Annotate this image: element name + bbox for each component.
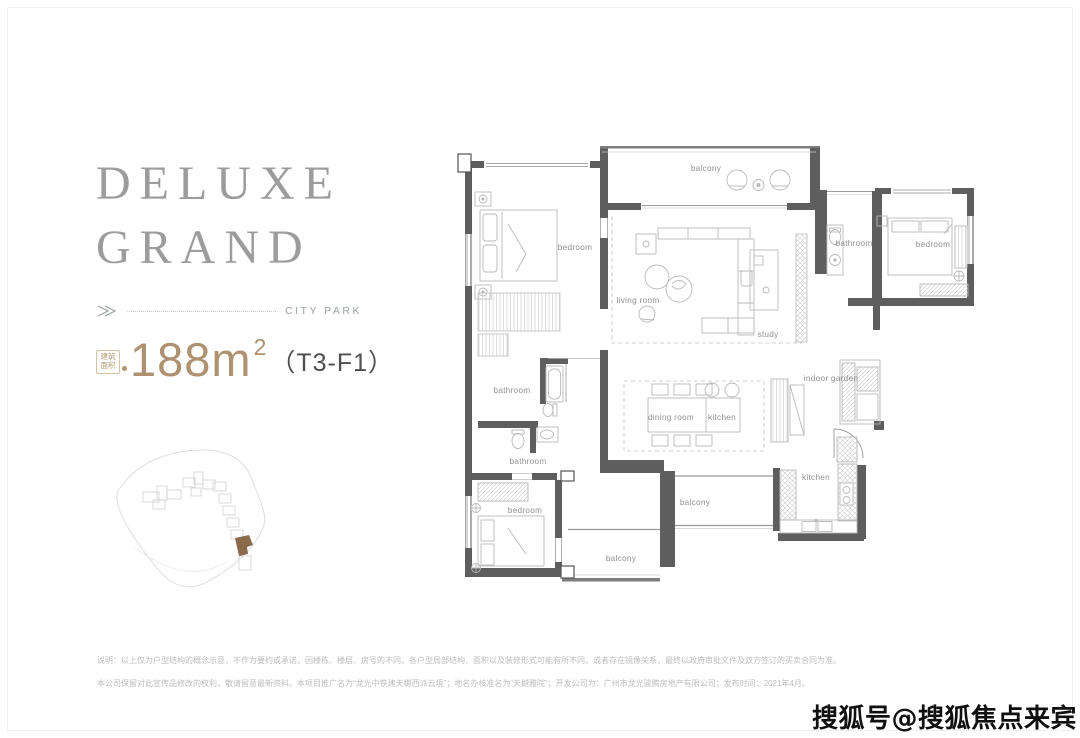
site-buildings — [143, 472, 251, 570]
room-label-indoor-garden: indoor garden — [804, 374, 859, 383]
site-boundary — [117, 450, 265, 587]
thin-lines — [548, 152, 880, 575]
location-label: CITY PARK — [285, 305, 362, 317]
kitchen-counters — [780, 437, 857, 533]
area-stamp-line2: 面积 — [97, 361, 119, 370]
gold-dot-icon — [122, 366, 127, 371]
unit-code: （T3-F1） — [270, 351, 394, 376]
brochure-page: DELUXE GRAND CITY PARK 建筑 面积 188m 2 （T3-… — [0, 0, 1080, 738]
area-exponent: 2 — [254, 336, 267, 359]
room-label-balcony-bottom: balcony — [606, 554, 637, 563]
wardrobe-hatch — [478, 293, 560, 356]
room-label-bedroom-top-left: bedroom — [558, 243, 592, 252]
bathroom-top-right-fixtures — [827, 225, 843, 275]
area-value: 188m — [130, 338, 252, 381]
site-plan-sketch — [95, 430, 300, 620]
disclaimer-line-1: 说明：以上仅为户型结构的概念示意，不作为要约或承诺，因楼栋、楼层、房号的不同，各… — [97, 652, 777, 669]
disclaimer: 说明：以上仅为户型结构的概念示意，不作为要约或承诺，因楼栋、楼层、房号的不同，各… — [97, 652, 777, 692]
room-label-study: study — [757, 330, 779, 339]
room-label-balcony-right: balcony — [680, 498, 711, 507]
title-line-2: GRAND — [96, 216, 342, 280]
room-label-bathroom-upper: bathroom — [494, 386, 531, 395]
area-stamp: 建筑 面积 — [96, 350, 120, 374]
highlighted-building-marker — [235, 535, 253, 556]
disclaimer-line-2: 本公司保留对此宣传品修改的权利，敬请留意最新资料。本项目推广名为“龙光中铁建天樾… — [97, 675, 777, 692]
dotted-divider — [127, 311, 276, 312]
page-title: DELUXE GRAND — [96, 152, 342, 280]
room-label-balcony-top: balcony — [691, 164, 722, 173]
room-label-bedroom-right: bedroom — [916, 240, 950, 249]
room-label-bedroom-bottom: bedroom — [508, 506, 542, 515]
balcony-chairs — [727, 170, 790, 191]
room-label-kitchen-open: kitchen — [708, 413, 736, 422]
living-shelf — [796, 234, 807, 342]
double-chevron-icon — [96, 304, 118, 318]
bathtub-icon — [546, 366, 563, 402]
bed-top-left — [475, 192, 557, 299]
area-stamp-line1: 建筑 — [97, 352, 119, 361]
room-label-bathroom-top-right: bathroom — [836, 239, 873, 248]
title-line-1: DELUXE — [96, 152, 342, 216]
bed-right — [877, 216, 968, 296]
pantry-cabinet — [771, 379, 804, 442]
bed-bottom — [472, 483, 545, 573]
room-label-dining-room: dining room — [648, 413, 694, 422]
watermark: 搜狐号@搜狐焦点来宾站 — [812, 698, 1080, 738]
room-label-living-room: living room — [617, 296, 660, 305]
area-row: 建筑 面积 188m 2 （T3-F1） — [96, 331, 394, 381]
room-label-kitchen: kitchen — [802, 473, 830, 482]
indoor-garden-planters — [840, 360, 880, 424]
room-label-bathroom-lower: bathroom — [510, 457, 547, 466]
windows — [466, 162, 974, 549]
floor-plan: balcony bedroom living room study bathro… — [450, 138, 990, 615]
study-desk — [741, 250, 778, 310]
sofa — [636, 228, 754, 335]
location-row: CITY PARK — [96, 304, 362, 318]
